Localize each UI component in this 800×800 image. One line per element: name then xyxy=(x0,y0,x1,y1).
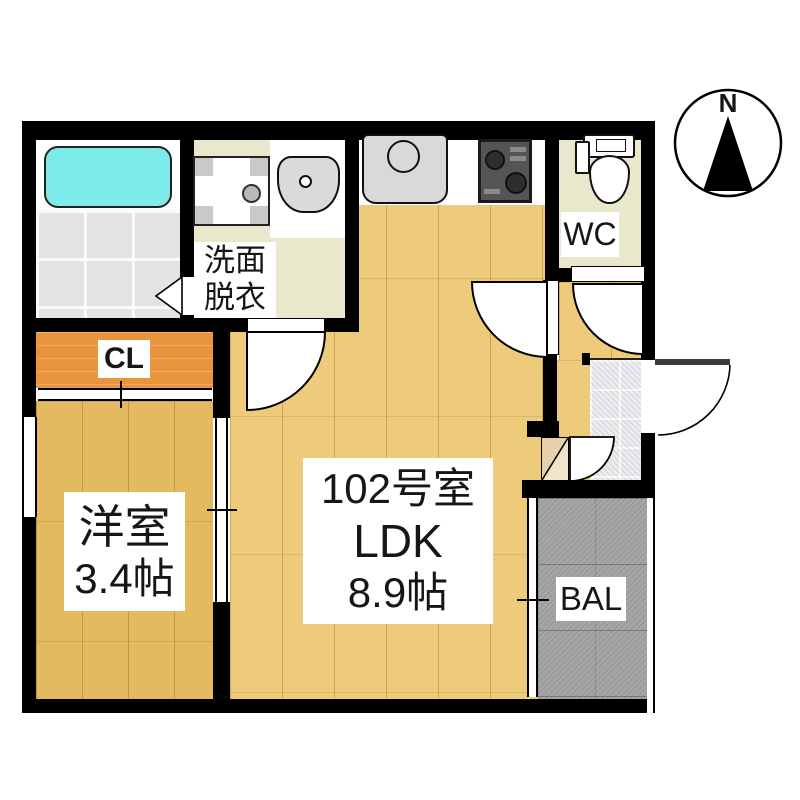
balcony-label-text: BAL xyxy=(560,580,622,619)
wall-left-lower xyxy=(22,517,36,699)
front-door-leaf xyxy=(655,359,730,365)
washroom-label-line1: 洗面 xyxy=(204,243,266,280)
toilet-tank-lid xyxy=(596,139,626,152)
washroom-label-line2: 脱衣 xyxy=(204,280,266,317)
gas-stove xyxy=(478,139,532,203)
washing-machine-pan xyxy=(193,156,270,226)
wall-left-upper xyxy=(22,140,36,417)
sink-faucet-icon xyxy=(387,140,420,173)
wall-washroom-kitchen xyxy=(345,140,359,332)
balcony-window-tick xyxy=(517,599,549,601)
wall-western-east-upper xyxy=(213,318,230,418)
pan-corner xyxy=(250,206,268,224)
wall-ldk-wc xyxy=(545,140,559,268)
western-room-name-label: 洋室 xyxy=(79,500,171,554)
wall-bottom xyxy=(22,699,651,713)
shoe-cabinet xyxy=(541,437,569,481)
wall-bath-washroom-upper xyxy=(180,140,194,277)
pan-corner xyxy=(195,158,213,176)
stove-grate-bar xyxy=(510,156,526,161)
wall-tile-corner-stub xyxy=(582,353,590,365)
western-room-size-label: 3.4帖 xyxy=(74,554,174,604)
wall-top xyxy=(22,121,655,140)
compass-north-label: N xyxy=(712,88,744,118)
wall-stub-horizontal xyxy=(527,421,559,437)
bathroom-door-opening xyxy=(180,277,194,315)
washroom-door-leaf xyxy=(247,318,325,332)
western-room-label: 洋室 3.4帖 xyxy=(64,492,185,611)
stove-burner-icon xyxy=(505,172,527,194)
pan-corner xyxy=(195,206,213,224)
floorplan-room-102: 102号室 LDK 8.9帖 洋室 3.4帖 CL WC BAL 洗面 脱衣 N xyxy=(0,0,800,800)
wall-western-east-lower xyxy=(213,602,230,699)
unit-size-label: 8.9帖 xyxy=(348,568,448,618)
pan-drain-icon xyxy=(242,184,261,203)
stove-grate-bar xyxy=(484,189,500,194)
closet-sliding-door xyxy=(38,388,212,401)
balcony-railing xyxy=(647,498,655,713)
wc-door-leaf xyxy=(571,266,645,282)
pan-corner xyxy=(250,158,268,176)
closet-door-tick xyxy=(120,381,122,408)
basin-faucet-icon xyxy=(299,175,312,188)
bathtub xyxy=(44,146,172,208)
hallway-floor xyxy=(559,282,647,360)
wc-label-text: WC xyxy=(563,216,616,254)
balcony-window xyxy=(527,498,538,697)
front-door-opening xyxy=(641,360,655,433)
balcony-label: BAL xyxy=(556,577,626,621)
toilet-control xyxy=(575,141,590,174)
western-room-window xyxy=(22,417,37,517)
bathroom-tile-floor xyxy=(36,210,180,318)
compass-north-text: N xyxy=(719,88,738,119)
washroom-label: 洗面 脱衣 xyxy=(194,242,276,318)
entrance-tile xyxy=(590,358,648,482)
north-needle-icon xyxy=(703,116,753,191)
stove-grate-bar xyxy=(510,147,526,152)
western-door-tick xyxy=(207,509,237,511)
front-door-swing-arc xyxy=(658,365,730,435)
unit-type-label: LDK xyxy=(353,514,442,568)
closet-label: CL xyxy=(98,340,150,378)
unit-number-label: 102号室 xyxy=(321,464,475,514)
wall-balcony-north xyxy=(522,480,655,498)
wall-right-upper xyxy=(641,140,655,360)
ldk-hall-door-leaf xyxy=(543,280,559,355)
unit-label: 102号室 LDK 8.9帖 xyxy=(303,458,493,624)
wc-label: WC xyxy=(561,212,619,257)
closet-label-text: CL xyxy=(104,341,144,376)
stove-burner-icon xyxy=(485,150,505,170)
